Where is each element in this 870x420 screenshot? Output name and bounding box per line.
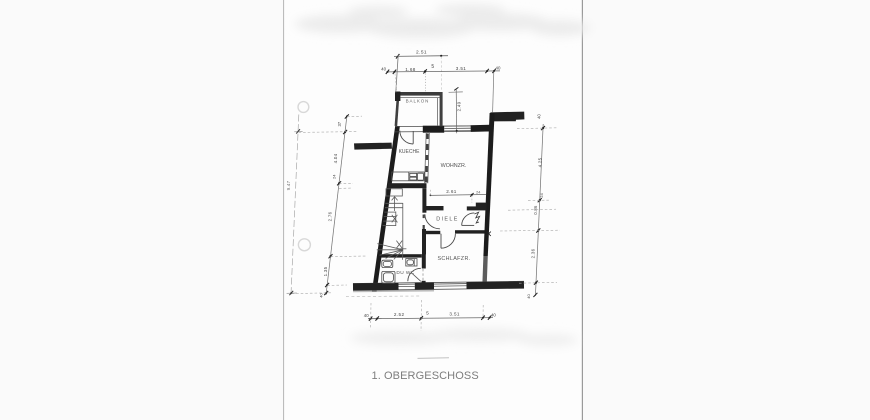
- svg-text:3.51: 3.51: [449, 312, 460, 317]
- svg-text:2.36: 2.36: [530, 248, 535, 258]
- svg-text:DIELE: DIELE: [436, 217, 459, 223]
- svg-text:4.25: 4.25: [538, 157, 543, 167]
- svg-text:9.47: 9.47: [286, 180, 291, 190]
- svg-text:5: 5: [426, 310, 429, 316]
- svg-text:24: 24: [539, 193, 544, 198]
- svg-text:1. OBERGESCHOSS: 1. OBERGESCHOSS: [372, 370, 479, 382]
- svg-text:40: 40: [537, 114, 542, 119]
- svg-text:3.51: 3.51: [456, 66, 467, 71]
- svg-text:5: 5: [431, 64, 434, 70]
- svg-text:40: 40: [364, 313, 369, 318]
- svg-text:2.61: 2.61: [446, 189, 457, 194]
- svg-text:2.49: 2.49: [457, 101, 462, 111]
- svg-text:37: 37: [337, 121, 342, 126]
- svg-text:2.51: 2.51: [416, 49, 427, 55]
- svg-text:24: 24: [331, 174, 336, 179]
- svg-text:2.76: 2.76: [328, 211, 333, 221]
- svg-text:40: 40: [491, 313, 496, 318]
- svg-text:BALKON: BALKON: [406, 99, 430, 104]
- svg-text:24: 24: [476, 190, 480, 194]
- svg-text:1.35: 1.35: [323, 266, 328, 276]
- svg-text:40: 40: [496, 66, 501, 71]
- svg-text:40: 40: [526, 294, 531, 299]
- svg-text:1.68: 1.68: [405, 67, 416, 72]
- svg-text:DU WC: DU WC: [396, 270, 414, 276]
- svg-text:4.04: 4.04: [333, 153, 338, 163]
- svg-text:WOHNZR.: WOHNZR.: [441, 163, 467, 169]
- svg-text:SCHLAFZR.: SCHLAFZR.: [437, 256, 470, 262]
- svg-text:KUECHE: KUECHE: [399, 149, 421, 155]
- svg-text:40: 40: [381, 67, 386, 72]
- svg-text:2.52: 2.52: [394, 312, 405, 317]
